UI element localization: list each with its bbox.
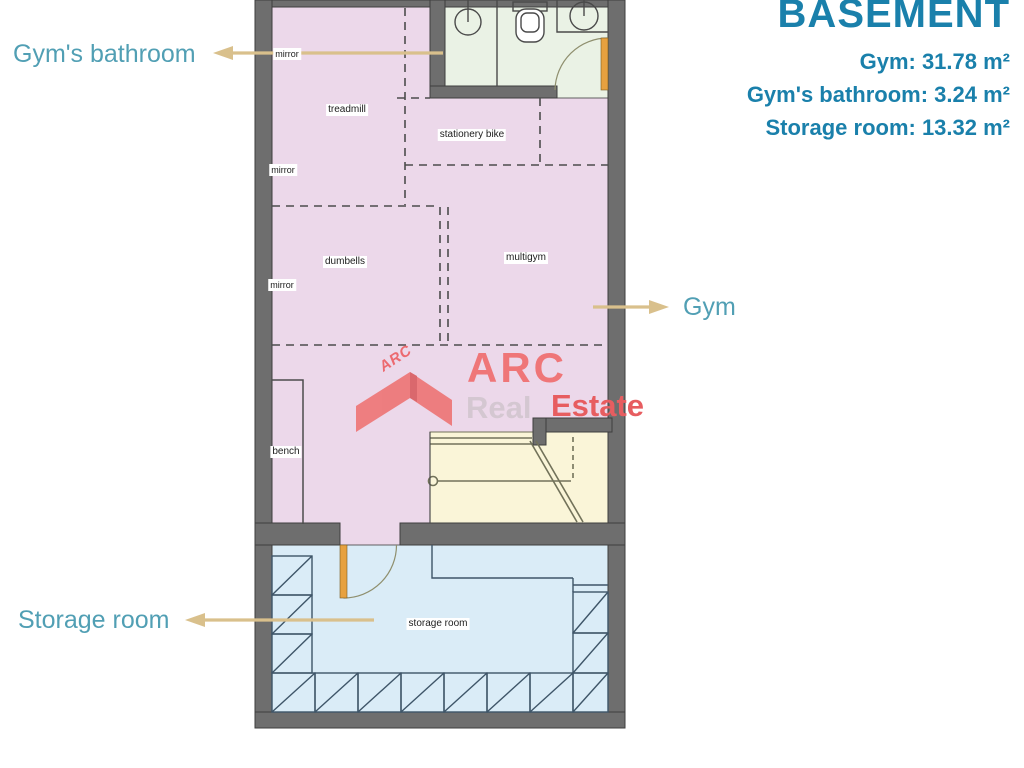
- area-line-gym: Gym: 31.78 m²: [747, 45, 1010, 78]
- wall-bathroom-left: [430, 0, 445, 98]
- wall-bottom: [255, 712, 625, 728]
- label-treadmill: treadmill: [326, 104, 368, 116]
- area-summary: Gym: 31.78 m² Gym's bathroom: 3.24 m² St…: [747, 45, 1010, 144]
- callout-storage-room: Storage room: [18, 606, 169, 635]
- label-dumbells: dumbells: [323, 256, 367, 268]
- label-storage-room: storage room: [407, 618, 470, 630]
- page-title: BASEMENT: [747, 0, 1010, 37]
- watermark-estate-text: Estate: [551, 388, 644, 424]
- wall-right: [608, 0, 625, 728]
- arc-brand-text: ARC: [467, 344, 567, 392]
- wall-bathroom-bottom: [430, 86, 557, 98]
- label-mirror-3: mirror: [268, 279, 296, 291]
- gym-door-gap-floor: [340, 523, 400, 546]
- label-mirror-2: mirror: [269, 164, 297, 176]
- label-mirror-1: mirror: [273, 48, 301, 60]
- area-line-storage: Storage room: 13.32 m²: [747, 111, 1010, 144]
- area-line-bathroom: Gym's bathroom: 3.24 m²: [747, 78, 1010, 111]
- wall-stairs-stub: [533, 418, 546, 445]
- wall-gym-storage-left: [255, 523, 340, 545]
- label-stationery-bike: stationery bike: [438, 129, 506, 141]
- floor-plan-page: ARC ARC Real Estate mirror treadmill sta…: [0, 0, 1024, 768]
- callout-gyms-bathroom: Gym's bathroom: [13, 40, 196, 69]
- wall-gym-storage-right: [400, 523, 625, 545]
- label-multigym: multigym: [504, 252, 548, 264]
- callout-gym: Gym: [683, 293, 736, 322]
- watermark-real-text: Real: [466, 390, 531, 426]
- bathroom-door-leaf: [601, 38, 608, 90]
- title-block: BASEMENT Gym: 31.78 m² Gym's bathroom: 3…: [747, 0, 1010, 144]
- storage-door-leaf: [340, 545, 347, 598]
- stairs-floor: [430, 432, 608, 523]
- label-bench: bench: [270, 446, 301, 458]
